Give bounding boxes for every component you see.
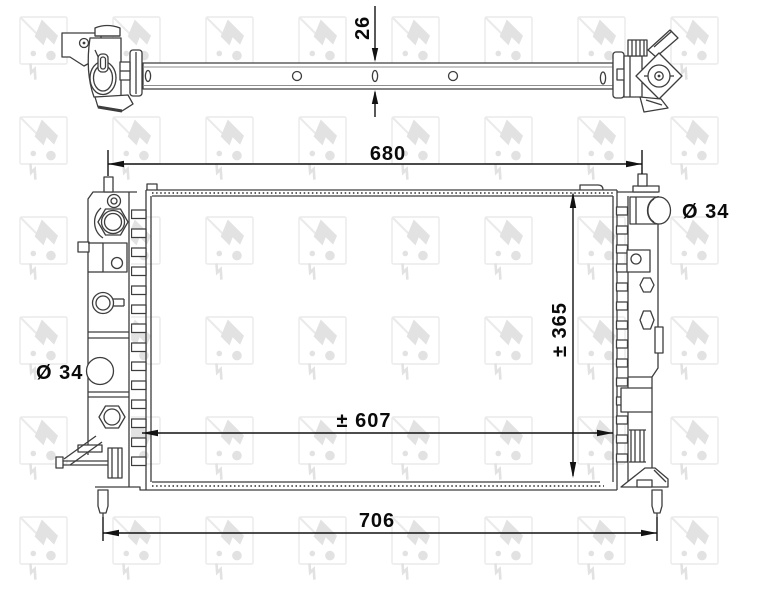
arrowhead-left <box>108 161 124 167</box>
left-tank <box>56 177 137 517</box>
bottom-left-mount-pin <box>98 490 108 513</box>
dimension-profile-thickness: 26 <box>352 6 378 117</box>
radiator-drawing-canvas: 26 <box>0 0 770 600</box>
dimension-bottom-mount-width: 706 <box>103 510 657 541</box>
arrowhead-right <box>641 530 657 536</box>
dimension-label-365: ± 365 <box>549 302 571 357</box>
bottom-right-mount-pin <box>652 490 662 513</box>
right-boss <box>627 250 650 272</box>
arrowhead-down <box>372 48 378 62</box>
radiator-core <box>131 184 617 490</box>
arrowhead-right <box>626 161 642 167</box>
label-left-port-diameter: Ø 34 <box>36 362 83 384</box>
core-clip-tabs-right <box>617 207 628 462</box>
arrowhead-up <box>570 192 576 208</box>
technical-drawing-svg: 26 <box>0 0 770 600</box>
right-inlet-pipe <box>630 197 671 224</box>
arrowhead-down <box>570 462 576 478</box>
left-outlet-port <box>87 358 114 385</box>
arrowhead-up <box>372 90 378 104</box>
label-right-port-diameter: Ø 34 <box>682 201 729 223</box>
dimension-label-607: ± 607 <box>337 410 392 432</box>
arrowhead-left <box>103 530 119 536</box>
top-view-right-fitting <box>613 30 682 112</box>
drain-plug <box>99 406 125 428</box>
hex-feature <box>640 278 654 292</box>
side-bracket <box>655 327 663 353</box>
dimension-core-height: ± 365 <box>549 192 576 478</box>
hex-feature <box>640 311 654 329</box>
front-view: 680 706 ± 607 ± 365 Ø 34 Ø 34 <box>36 143 729 541</box>
dimension-label-680: 680 <box>370 143 406 165</box>
dimension-label-26: 26 <box>352 16 374 40</box>
top-left-mount-pin <box>104 177 113 192</box>
top-view-profile: 26 <box>62 6 682 117</box>
top-right-mount-pin <box>638 174 647 186</box>
bleed-screw <box>108 195 121 208</box>
dimension-top-mount-width: 680 <box>108 143 642 176</box>
dimension-label-706: 706 <box>359 510 395 532</box>
